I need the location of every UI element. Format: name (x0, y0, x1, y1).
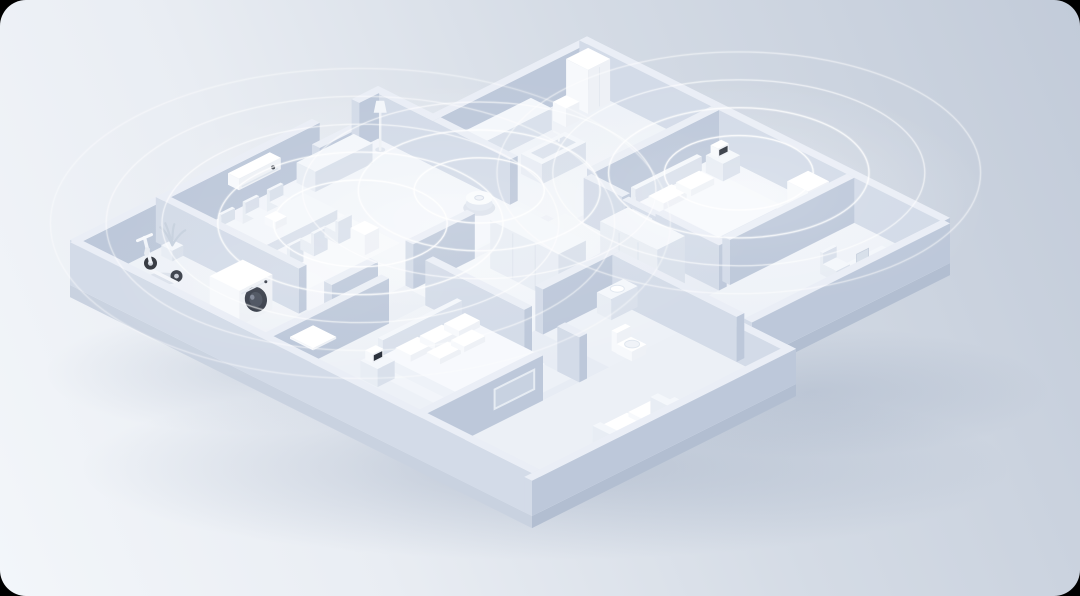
video-frame (0, 0, 1080, 596)
smart-home-floorplan-render (0, 0, 1080, 596)
air-glow (491, 72, 991, 312)
air-glow (75, 174, 505, 374)
floorplan-illustration (0, 0, 1080, 596)
